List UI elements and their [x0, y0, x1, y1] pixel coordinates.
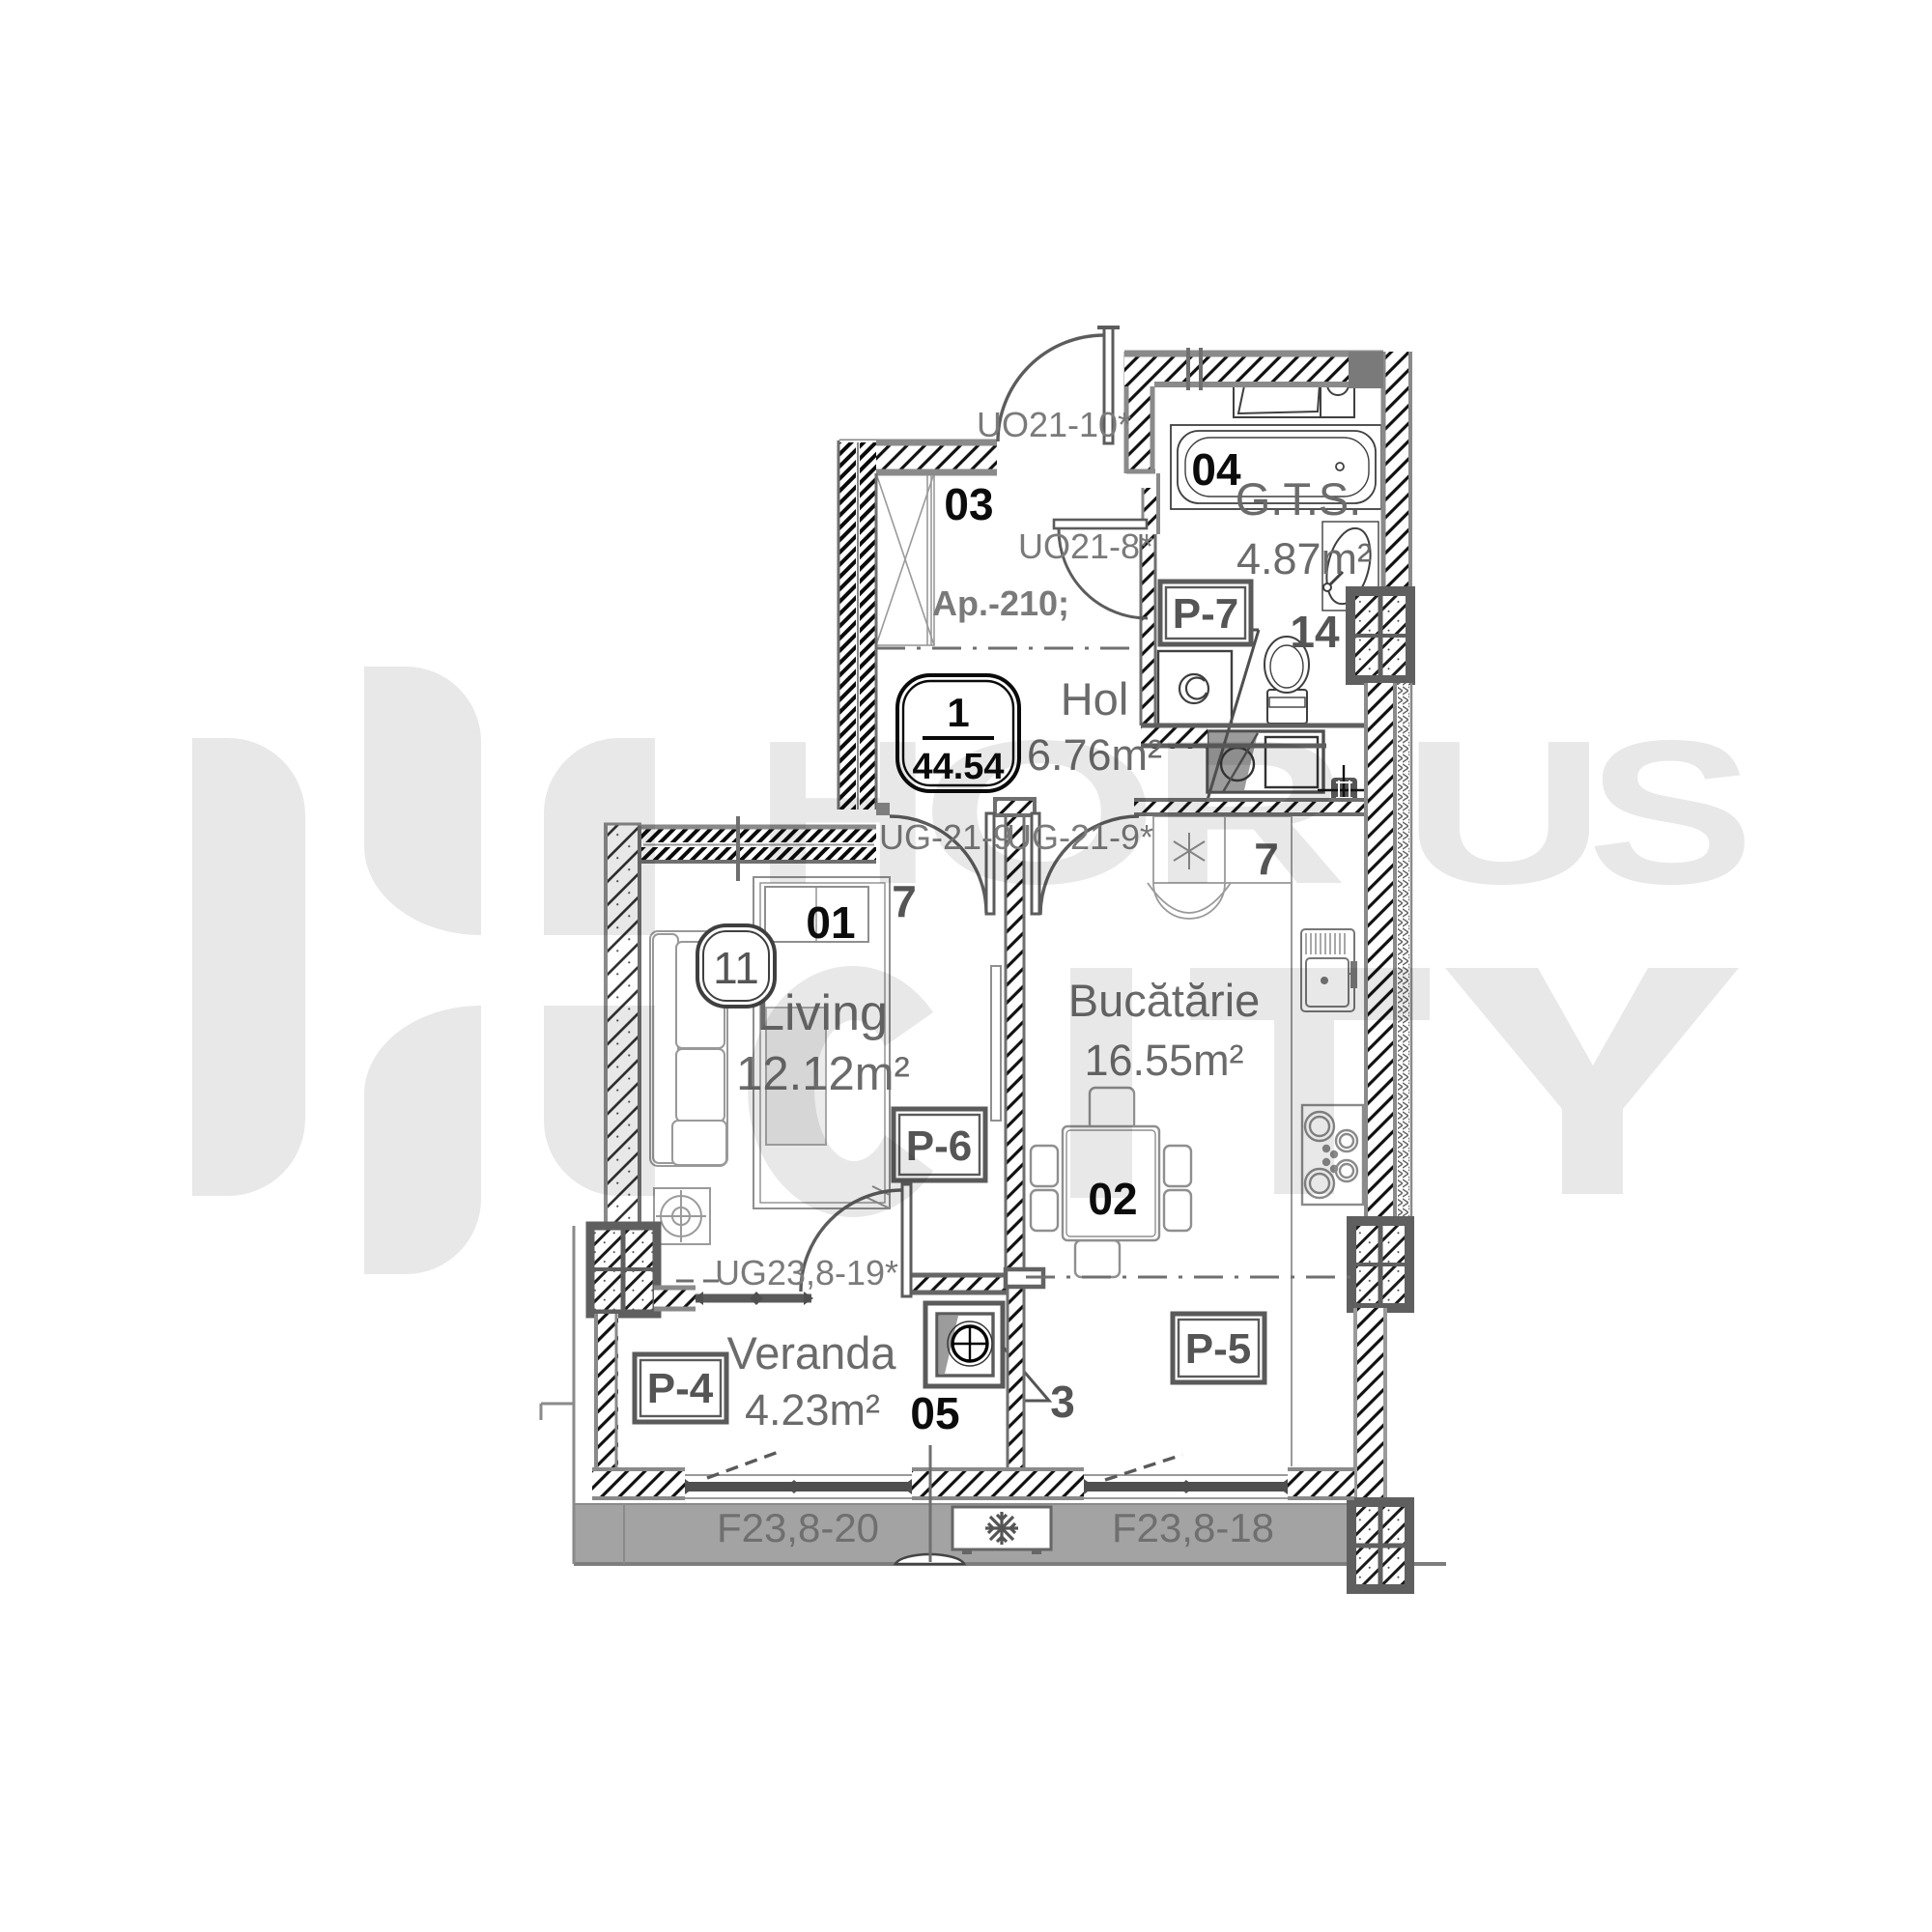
- svg-text:UO21-8*: UO21-8*: [1018, 526, 1153, 566]
- svg-text:03: 03: [944, 479, 993, 529]
- svg-text:Ap.-210;: Ap.-210;: [932, 583, 1069, 623]
- svg-text:H: H: [753, 697, 932, 926]
- svg-text:P-5: P-5: [1185, 1325, 1251, 1373]
- svg-text:P-7: P-7: [1173, 590, 1238, 638]
- svg-text:11: 11: [713, 943, 759, 993]
- svg-text:P-4: P-4: [647, 1365, 714, 1412]
- svg-text:04: 04: [1191, 444, 1241, 495]
- svg-text:4.87m²: 4.87m²: [1236, 534, 1372, 583]
- svg-text:UO21-10*: UO21-10*: [977, 405, 1131, 444]
- svg-text:R: R: [1150, 697, 1348, 926]
- svg-text:G.T.S.: G.T.S.: [1236, 473, 1362, 525]
- svg-text:Veranda: Veranda: [726, 1327, 896, 1378]
- svg-text:4.23m²: 4.23m²: [745, 1385, 880, 1435]
- svg-text:S: S: [1587, 697, 1754, 926]
- svg-text:O: O: [920, 697, 1159, 926]
- svg-text:14: 14: [1290, 607, 1340, 657]
- svg-text:3: 3: [1050, 1377, 1075, 1427]
- svg-text:F23,8-20: F23,8-20: [717, 1505, 879, 1550]
- svg-text:U: U: [1402, 697, 1606, 926]
- svg-text:F23,8-18: F23,8-18: [1112, 1505, 1274, 1550]
- svg-text:05: 05: [910, 1388, 959, 1438]
- svg-text:UG23,8-19*: UG23,8-19*: [715, 1253, 898, 1293]
